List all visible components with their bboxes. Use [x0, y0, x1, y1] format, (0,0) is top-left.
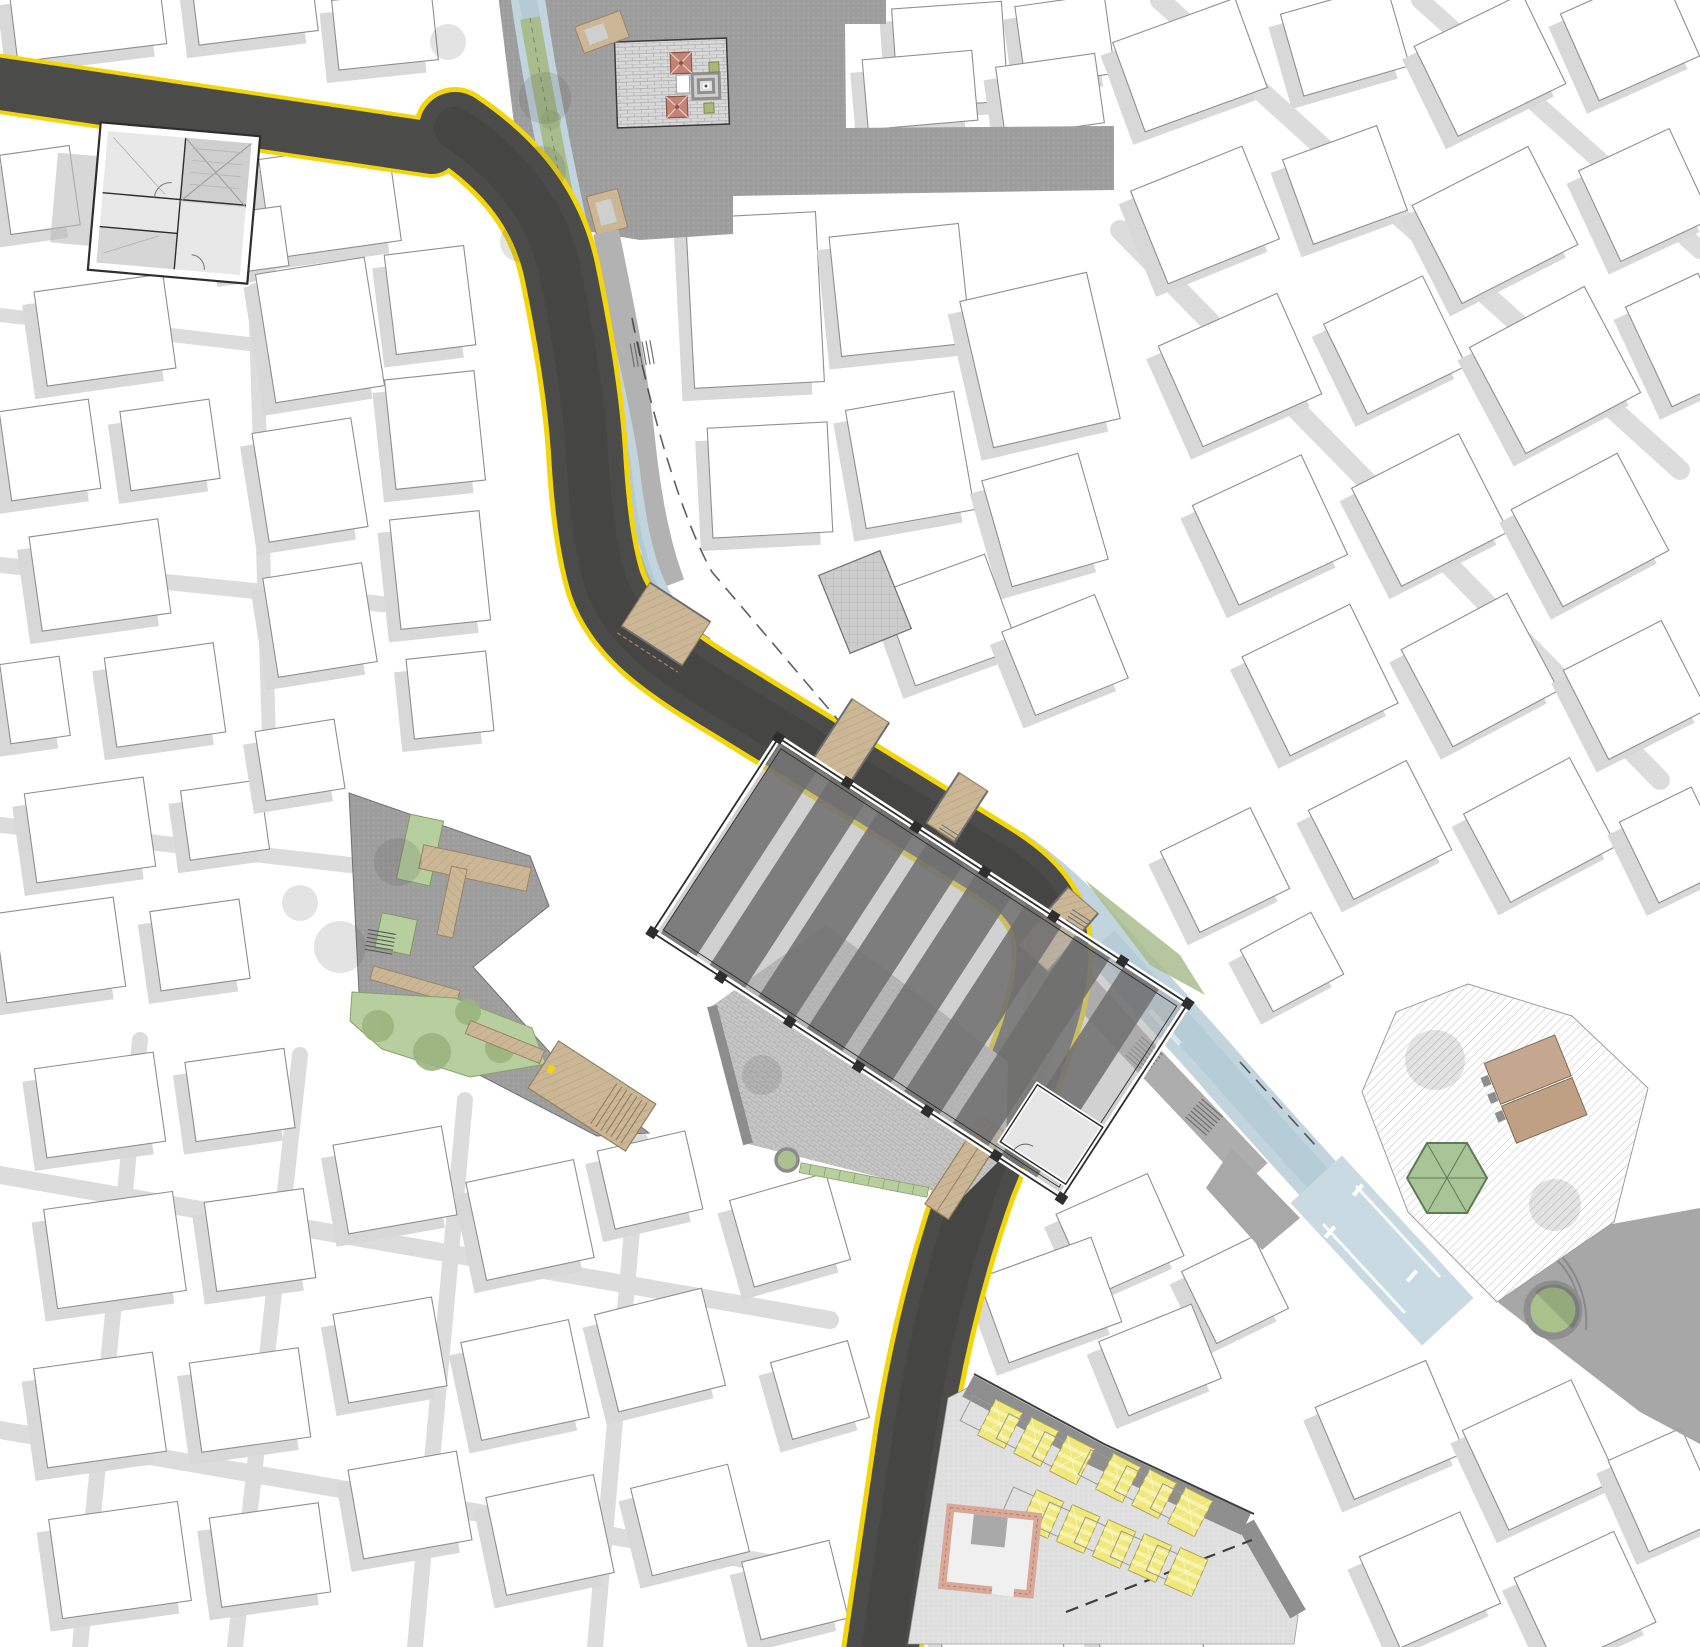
building: [173, 1048, 295, 1154]
kiosk-roof: [971, 1514, 1008, 1547]
building-footprint: [209, 1503, 330, 1607]
building: [321, 1297, 447, 1416]
site-plan-canvas: [0, 0, 1700, 1647]
building-footprint: [44, 1191, 187, 1308]
building: [243, 719, 345, 814]
building-footprint: [384, 245, 476, 354]
building-footprint: [333, 1126, 457, 1234]
red-canopy-1: [670, 52, 692, 74]
building-footprint: [406, 651, 494, 739]
tree-canopy: [314, 921, 366, 973]
building: [0, 399, 101, 514]
building: [197, 1503, 330, 1620]
tree-canopy: [500, 222, 540, 262]
building-footprint: [829, 224, 971, 357]
building-footprint: [34, 1052, 165, 1158]
fountain: [691, 71, 722, 100]
building-footprint: [996, 53, 1105, 136]
building-footprint: [384, 371, 485, 490]
building-footprint: [707, 422, 833, 538]
building: [695, 422, 833, 551]
building: [37, 1501, 192, 1631]
picnic-table: [676, 75, 690, 93]
building-footprint: [389, 511, 490, 630]
tree-canopy: [282, 885, 318, 921]
building: [674, 212, 825, 402]
building-footprint: [34, 274, 176, 386]
tree-canopy: [430, 24, 466, 60]
building: [22, 274, 176, 399]
building-footprint: [332, 0, 439, 70]
building-footprint: [150, 899, 250, 991]
building: [394, 651, 494, 752]
building: [251, 563, 377, 690]
building: [12, 777, 155, 896]
building-footprint: [263, 563, 377, 677]
building: [192, 1188, 316, 1304]
tree-canopy: [374, 838, 422, 886]
building: [22, 1052, 165, 1171]
building-footprint: [104, 643, 225, 747]
building-footprint: [24, 777, 155, 883]
building: [336, 1451, 472, 1572]
building: [17, 519, 171, 644]
building: [0, 897, 126, 1016]
building-footprint: [29, 519, 171, 631]
building-footprint: [185, 1048, 295, 1141]
building-footprint: [252, 418, 368, 542]
building-footprint: [348, 1451, 472, 1559]
building: [138, 899, 250, 1004]
building-footprint: [333, 1297, 447, 1403]
building: [32, 1191, 187, 1321]
tree-canopy: [1529, 1179, 1581, 1231]
building: [321, 1126, 457, 1247]
building: [817, 224, 971, 370]
tree-canopy: [518, 146, 566, 194]
building-footprint: [0, 656, 70, 744]
building: [22, 1352, 167, 1481]
brick-walled-kiosk: [938, 1503, 1038, 1598]
park-lawn-upper-2: [375, 913, 418, 956]
building: [320, 0, 439, 83]
building-footprint: [0, 399, 101, 501]
building-footprint: [686, 212, 825, 389]
building-footprint: [204, 1188, 316, 1291]
building-footprint: [34, 1352, 167, 1468]
tree-canopy: [742, 1055, 782, 1095]
building-footprint: [256, 257, 385, 403]
red-canopy-2: [666, 96, 688, 118]
building: [833, 391, 974, 541]
building: [92, 643, 225, 760]
building: [108, 399, 220, 504]
building: [372, 371, 485, 503]
tree-canopy: [519, 72, 571, 124]
building: [244, 257, 385, 416]
building: [372, 245, 476, 367]
circular-tree-planter: [1527, 1284, 1580, 1336]
tree-planter: [776, 1149, 798, 1171]
building-footprint: [189, 1348, 310, 1452]
building: [377, 511, 490, 643]
building-footprint: [862, 50, 978, 129]
building-footprint: [845, 391, 974, 528]
building-footprint: [49, 1501, 192, 1618]
building-footprint: [255, 719, 345, 801]
building: [240, 418, 368, 555]
building-footprint: [120, 399, 220, 491]
site-plan: [0, 0, 1700, 1647]
building-footprint: [0, 897, 126, 1003]
building: [177, 1348, 310, 1465]
tree-canopy: [1405, 1030, 1465, 1090]
